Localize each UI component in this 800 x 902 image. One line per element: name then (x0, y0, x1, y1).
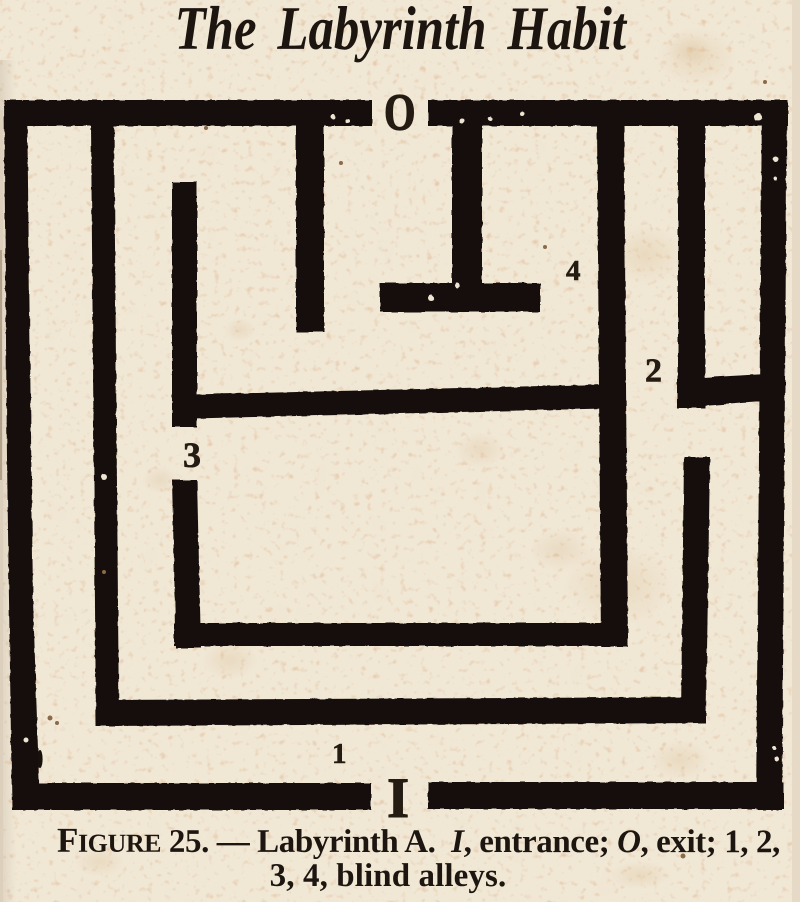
svg-text:4: 4 (566, 255, 581, 287)
svg-text:1: 1 (332, 738, 347, 770)
svg-text:3: 3 (183, 435, 201, 475)
svg-text:O: O (384, 84, 416, 142)
svg-text:2: 2 (645, 352, 662, 389)
